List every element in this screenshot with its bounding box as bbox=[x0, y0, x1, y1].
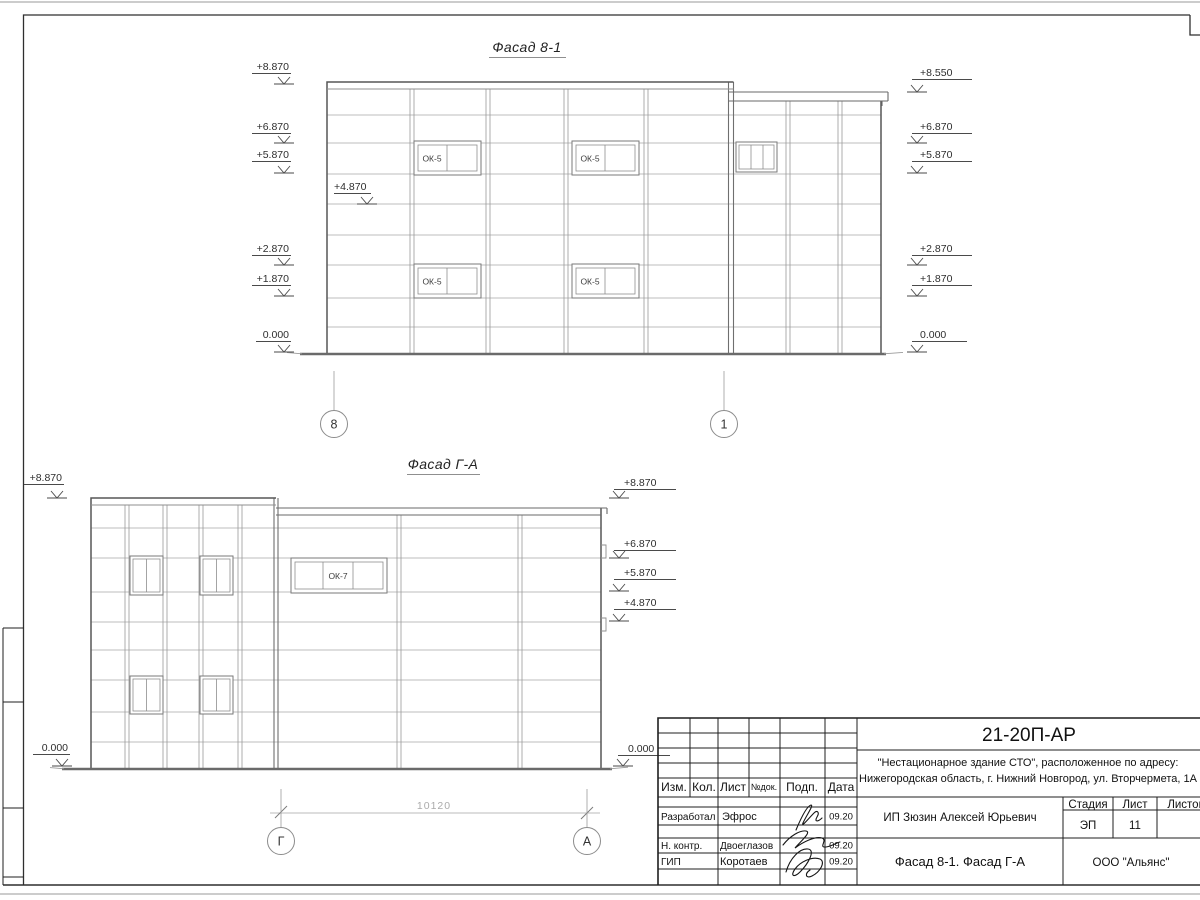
elevation-value: +1.870 bbox=[920, 273, 953, 285]
elevation-mark: +4.870 bbox=[609, 597, 676, 621]
window-label: ОК-5 bbox=[422, 154, 441, 164]
row-date: 09.20 bbox=[829, 857, 853, 868]
axis-label: Г bbox=[278, 835, 285, 849]
axis-label: 1 bbox=[721, 418, 728, 432]
elevation-mark: 0.000 bbox=[256, 329, 294, 352]
elevation-value: +2.870 bbox=[257, 243, 290, 255]
elevation-marks-right: +8.550 +6.870 +5.870 +2.870 +1.870 0.000 bbox=[907, 67, 972, 352]
window-ok5-bottom-1: ОК-5 bbox=[414, 264, 481, 298]
facade2-wall-line bbox=[274, 498, 278, 768]
drawing-sheet: Фасад 8-1 ОК-5 ОК-5 bbox=[0, 0, 1200, 900]
elevation-value: +1.870 bbox=[257, 273, 290, 285]
drawing-title: Фасад 8-1. Фасад Г-А bbox=[895, 854, 1025, 869]
project-address-line2: Нижегородская область, г. Нижний Новгоро… bbox=[859, 773, 1198, 785]
elevation-value: +5.870 bbox=[920, 149, 953, 161]
col-ndok: №док. bbox=[751, 782, 777, 792]
facade1-ground-line bbox=[287, 352, 903, 354]
facade2-panel-joints-v bbox=[125, 505, 522, 768]
sheets-label: Листов bbox=[1167, 799, 1200, 811]
axis-label: 8 bbox=[331, 418, 338, 432]
title-block: Изм. Кол. Лист №док. Подп. Дата Разработ… bbox=[658, 718, 1200, 885]
facade2-canopy bbox=[276, 508, 607, 515]
window-ok5-top-2: ОК-5 bbox=[572, 141, 639, 175]
elevation-value: +4.870 bbox=[334, 181, 367, 193]
elevation-value: 0.000 bbox=[42, 742, 68, 754]
elevation-value: 0.000 bbox=[920, 329, 946, 341]
window-small-bottom-1 bbox=[130, 676, 163, 714]
row-role: Н. контр. bbox=[661, 841, 702, 852]
facade1-canopy bbox=[729, 92, 889, 106]
client-name: ИП Зюзин Алексей Юрьевич bbox=[883, 812, 1036, 824]
dimension-10120: 10120 bbox=[270, 800, 600, 819]
dimension-value: 10120 bbox=[417, 800, 451, 812]
elevation-value: +8.550 bbox=[920, 67, 953, 79]
elevation-marks-left: +8.870 +6.870 +5.870 +2.870 +1.870 0.000 bbox=[252, 61, 377, 352]
elevation-mark: +8.550 bbox=[907, 67, 972, 92]
frame-left-column bbox=[3, 628, 24, 885]
row-name: Эфрос bbox=[722, 811, 757, 823]
elevation-value: +8.870 bbox=[30, 472, 63, 484]
elevation-mark: +5.870 bbox=[907, 149, 972, 173]
elevation-value: 0.000 bbox=[263, 329, 289, 341]
elevation-mark: +1.870 bbox=[907, 273, 972, 296]
facade2-outline bbox=[91, 498, 601, 768]
elevation-value: +8.870 bbox=[257, 61, 290, 73]
window-label: ОК-5 bbox=[580, 154, 599, 164]
elevation-marks-right: +8.870 +6.870 +5.870 +4.870 0.000 bbox=[609, 477, 676, 766]
elevation-mark: +8.870 bbox=[252, 61, 294, 84]
window-label: ОК-7 bbox=[328, 571, 347, 581]
facade-g-a-title: Фасад Г-А bbox=[408, 456, 479, 472]
row-name: Двоеглазов bbox=[720, 841, 773, 852]
stage-value: ЭП bbox=[1080, 820, 1097, 832]
col-list: Лист bbox=[720, 780, 747, 794]
window-small-bottom-2 bbox=[200, 676, 233, 714]
elevation-mark: +2.870 bbox=[252, 243, 294, 265]
axis-8: 8 bbox=[321, 371, 348, 438]
axis-a: А bbox=[574, 789, 601, 855]
elevation-mark: +2.870 bbox=[907, 243, 972, 265]
facade-8-1-title: Фасад 8-1 bbox=[492, 39, 561, 55]
signature-dvoeglazov bbox=[783, 831, 840, 848]
elevation-mark: +6.870 bbox=[609, 538, 676, 558]
axis-label: А bbox=[583, 835, 592, 849]
row-role: ГИП bbox=[661, 857, 681, 868]
facade-8-1: Фасад 8-1 ОК-5 ОК-5 bbox=[252, 39, 972, 438]
facade1-wall-line bbox=[729, 82, 734, 353]
elevation-value: +5.870 bbox=[257, 149, 290, 161]
row-role: Разработал bbox=[661, 811, 716, 823]
elevation-mark: +8.870 bbox=[24, 472, 67, 498]
elevation-mark: 0.000 bbox=[33, 742, 72, 766]
row-date: 09.20 bbox=[829, 841, 853, 852]
elevation-value: +6.870 bbox=[624, 538, 657, 550]
window-triple-top bbox=[736, 142, 777, 172]
signature-rows: Разработал Эфрос 09.20 Н. контр. Двоегла… bbox=[661, 805, 853, 877]
sheet-canvas: Фасад 8-1 ОК-5 ОК-5 bbox=[0, 0, 1200, 900]
doc-number: 21-20П-АР bbox=[982, 725, 1076, 746]
facade2-ground-line bbox=[50, 767, 628, 769]
elevation-mark-inner: +4.870 bbox=[334, 181, 377, 204]
elevation-mark: +6.870 bbox=[252, 121, 294, 143]
facade-g-a: Фасад Г-А ОК-7 bbox=[24, 456, 676, 855]
company-name: ООО "Альянс" bbox=[1093, 857, 1170, 869]
axis-1: 1 bbox=[711, 371, 738, 438]
elevation-value: +6.870 bbox=[257, 121, 290, 133]
elevation-value: +5.870 bbox=[624, 567, 657, 579]
window-ok7: ОК-7 bbox=[291, 558, 387, 593]
facade1-panel-joints-v bbox=[410, 89, 842, 353]
col-izm: Изм. bbox=[661, 780, 687, 794]
elevation-mark: +1.870 bbox=[252, 273, 294, 296]
elevation-mark: +6.870 bbox=[907, 121, 972, 143]
elevation-value: +8.870 bbox=[624, 477, 657, 489]
signature-efros bbox=[796, 805, 822, 830]
stage-label: Стадия bbox=[1068, 799, 1107, 811]
col-kol: Кол. bbox=[692, 780, 716, 794]
sheet-number: 11 bbox=[1129, 820, 1141, 832]
sheet-label: Лист bbox=[1123, 799, 1149, 811]
elevation-value: 0.000 bbox=[628, 743, 654, 755]
window-label: ОК-5 bbox=[422, 277, 441, 287]
elevation-mark: +5.870 bbox=[609, 567, 676, 591]
col-podp: Подп. bbox=[786, 780, 818, 794]
window-label: ОК-5 bbox=[580, 277, 599, 287]
elevation-mark: 0.000 bbox=[907, 329, 967, 352]
project-address-line1: "Нестационарное здание СТО", расположенн… bbox=[878, 757, 1179, 769]
elevation-mark: +5.870 bbox=[252, 149, 294, 173]
row-date: 09.20 bbox=[829, 812, 853, 823]
row-name: Коротаев bbox=[720, 856, 768, 868]
elevation-mark: +8.870 bbox=[609, 477, 676, 498]
elevation-value: +2.870 bbox=[920, 243, 953, 255]
elevation-value: +4.870 bbox=[624, 597, 657, 609]
window-ok5-top-1: ОК-5 bbox=[414, 141, 481, 175]
elevation-marks-left: +8.870 0.000 bbox=[24, 472, 72, 766]
window-ok5-bottom-2: ОК-5 bbox=[572, 264, 639, 298]
elevation-value: +6.870 bbox=[920, 121, 953, 133]
window-small-top-1 bbox=[130, 556, 163, 595]
col-data: Дата bbox=[828, 780, 855, 794]
axis-g: Г bbox=[268, 789, 295, 855]
window-small-top-2 bbox=[200, 556, 233, 595]
